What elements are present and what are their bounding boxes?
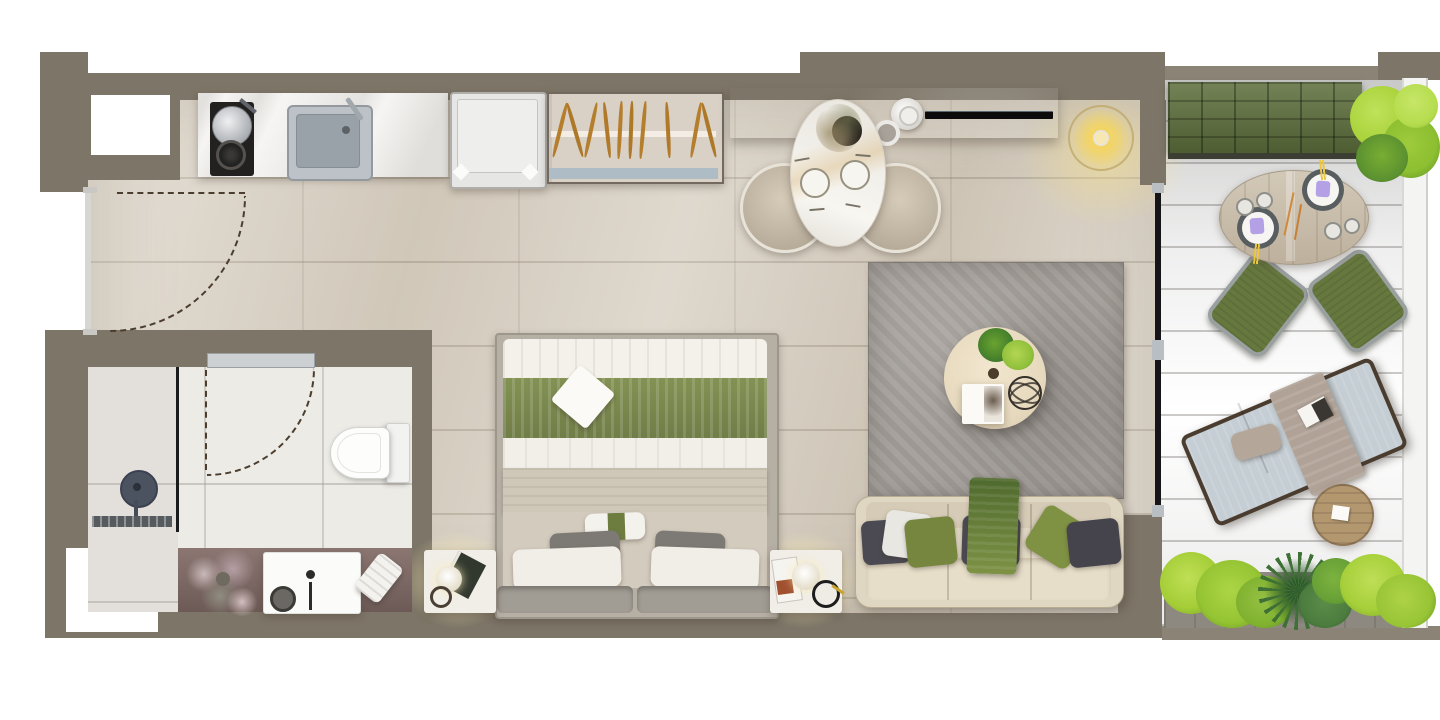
corner-plant-4 — [1394, 84, 1438, 128]
basin-faucet-stem — [309, 582, 312, 610]
shaft-void-top-left — [91, 95, 170, 155]
tv — [925, 111, 1053, 119]
sofa-cushion-dark-3 — [1066, 517, 1123, 568]
entry-door-swing-line — [117, 192, 245, 194]
place-plate-left — [800, 168, 830, 198]
pillow-white-right — [650, 546, 759, 590]
wall-stub-balcony-bottom — [1118, 515, 1162, 615]
pendant-lamp-center — [1093, 130, 1109, 146]
sink-drain — [342, 126, 350, 134]
table-bowl-2 — [1256, 192, 1273, 209]
toilet-seat — [337, 433, 381, 473]
sofa-seam-2 — [1030, 504, 1032, 600]
blanket-beige — [503, 468, 767, 512]
vanity-plant-4 — [226, 588, 258, 616]
corner-plant-3 — [1356, 134, 1408, 182]
soap-dish — [270, 586, 296, 612]
napkin-bottom — [1249, 218, 1264, 235]
duvet-white-top — [503, 339, 767, 378]
duvet-white-mid — [503, 438, 767, 468]
green-throw — [966, 477, 1019, 575]
balcony-top-corner — [1378, 52, 1440, 80]
sofa-cushion-green-1 — [904, 516, 959, 569]
fridge-top-panel — [457, 99, 538, 173]
entry-threshold — [85, 192, 91, 330]
table-bowl-4 — [1344, 218, 1360, 234]
floor-plan-canvas — [0, 0, 1440, 720]
sliding-door-connector-bottom — [1152, 505, 1164, 517]
headboard-right — [637, 586, 773, 613]
table-bowl-1 — [1236, 198, 1254, 216]
napkin-top — [1316, 181, 1331, 198]
vanity-plant-core — [216, 572, 230, 586]
bench-base — [1168, 153, 1362, 159]
shower-partition — [176, 367, 179, 532]
basin-faucet-dot — [306, 570, 315, 579]
coffee-plant-bright — [1002, 340, 1034, 370]
nightstand-right-magazine-photo — [776, 579, 794, 595]
place-plate-right — [840, 160, 870, 190]
decor-vase-large-mouth — [899, 106, 919, 126]
shower-drain — [92, 516, 172, 527]
coffee-table-knob — [988, 368, 999, 379]
pillow-white-left — [512, 546, 621, 590]
sliding-door-connector-mid — [1152, 340, 1164, 360]
entry-jamb-top — [83, 187, 97, 193]
nightstand-left-ring — [430, 586, 452, 608]
entry-jamb-bottom — [83, 329, 97, 335]
planter-flower-6 — [1376, 574, 1436, 628]
shower-head-center — [133, 483, 141, 491]
wall-top-left-block — [40, 52, 88, 192]
wardrobe-base-strip — [549, 168, 718, 179]
burner — [216, 140, 246, 170]
tufted-bench — [1168, 82, 1362, 153]
wall-stub-balcony-top — [1140, 100, 1166, 185]
headboard-left — [497, 586, 633, 613]
nightstand-right-clock — [812, 580, 840, 608]
kitchen-sink-basin — [296, 114, 360, 168]
coffee-book-photo — [984, 386, 1002, 422]
side-table-card — [1331, 505, 1350, 521]
green-runner — [503, 378, 767, 438]
flower-sprigs — [816, 104, 862, 152]
sliding-door-connector-top — [1152, 183, 1164, 193]
bathroom-door-leaf — [207, 353, 315, 368]
table-bowl-3 — [1324, 222, 1342, 240]
